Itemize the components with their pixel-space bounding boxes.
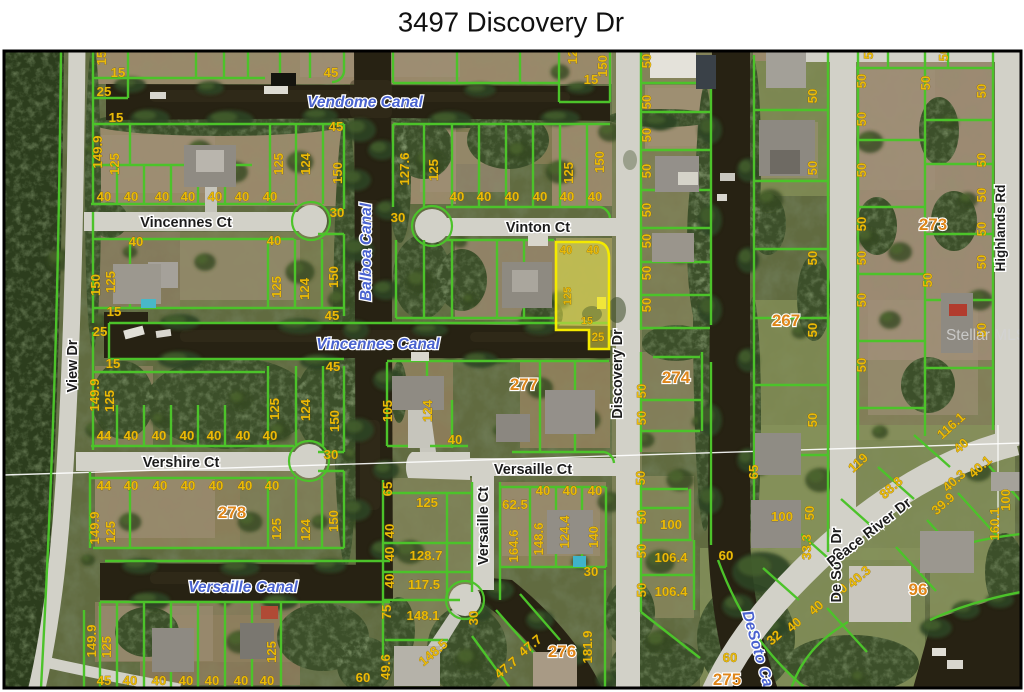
svg-text:125: 125 <box>103 521 118 543</box>
svg-text:Versaille Ct: Versaille Ct <box>476 487 492 565</box>
svg-text:164.6: 164.6 <box>506 529 521 562</box>
svg-text:100: 100 <box>998 489 1013 511</box>
svg-text:181.9: 181.9 <box>580 630 595 663</box>
svg-text:124: 124 <box>298 398 313 421</box>
svg-text:15: 15 <box>106 356 121 371</box>
svg-text:40: 40 <box>267 233 282 248</box>
svg-text:40: 40 <box>536 483 551 498</box>
svg-text:273: 273 <box>919 215 947 234</box>
svg-text:45: 45 <box>325 308 340 323</box>
svg-text:150: 150 <box>330 162 345 184</box>
svg-text:40: 40 <box>448 432 463 447</box>
svg-text:150: 150 <box>326 510 341 532</box>
svg-text:25: 25 <box>97 84 112 99</box>
svg-text:40: 40 <box>123 673 138 688</box>
svg-text:40: 40 <box>208 189 223 204</box>
svg-text:Versaille Ct: Versaille Ct <box>494 462 572 478</box>
svg-text:40: 40 <box>234 673 249 688</box>
svg-text:125: 125 <box>269 276 284 298</box>
svg-text:40: 40 <box>181 189 196 204</box>
svg-text:50: 50 <box>634 510 649 525</box>
svg-text:15: 15 <box>584 72 599 87</box>
svg-text:50: 50 <box>634 411 649 426</box>
svg-text:40: 40 <box>124 478 139 493</box>
svg-text:50: 50 <box>854 163 869 178</box>
svg-text:40: 40 <box>205 673 220 688</box>
svg-text:40: 40 <box>382 524 397 539</box>
svg-text:40: 40 <box>155 189 170 204</box>
svg-text:124: 124 <box>298 518 313 541</box>
svg-text:40: 40 <box>152 673 167 688</box>
svg-text:50: 50 <box>854 251 869 266</box>
svg-text:267: 267 <box>772 311 800 330</box>
svg-text:125: 125 <box>271 153 286 175</box>
svg-text:49.6: 49.6 <box>378 654 393 680</box>
svg-text:Versaille Canal: Versaille Canal <box>188 579 298 596</box>
svg-text:125: 125 <box>103 271 118 293</box>
svg-text:148.6: 148.6 <box>531 522 546 555</box>
svg-text:125: 125 <box>99 636 114 658</box>
svg-text:Balboa Canal: Balboa Canal <box>358 202 375 301</box>
svg-text:50: 50 <box>805 161 820 176</box>
svg-text:149.9: 149.9 <box>84 624 99 657</box>
svg-text:275: 275 <box>713 670 741 689</box>
svg-text:50: 50 <box>805 89 820 104</box>
svg-text:50: 50 <box>805 413 820 428</box>
svg-text:60: 60 <box>723 650 738 665</box>
svg-text:50: 50 <box>805 323 820 338</box>
svg-text:125: 125 <box>561 162 576 184</box>
svg-text:40: 40 <box>563 483 578 498</box>
svg-text:40: 40 <box>181 478 196 493</box>
svg-text:Vendome Canal: Vendome Canal <box>307 94 423 111</box>
svg-text:50: 50 <box>854 74 869 89</box>
svg-text:50: 50 <box>854 217 869 232</box>
svg-text:106.4: 106.4 <box>654 584 688 599</box>
svg-text:30: 30 <box>584 564 599 579</box>
svg-text:50: 50 <box>634 583 649 598</box>
svg-text:125: 125 <box>102 390 117 412</box>
svg-text:40: 40 <box>207 428 222 443</box>
svg-text:105: 105 <box>380 400 395 422</box>
svg-text:150: 150 <box>326 266 341 288</box>
svg-text:50: 50 <box>854 358 869 373</box>
svg-text:50: 50 <box>634 384 649 399</box>
svg-text:30: 30 <box>324 447 339 462</box>
svg-text:50: 50 <box>639 95 654 110</box>
svg-text:40: 40 <box>505 189 520 204</box>
svg-text:150: 150 <box>327 410 342 432</box>
svg-text:3497 Discovery Dr: 3497 Discovery Dr <box>398 7 624 38</box>
svg-text:125: 125 <box>426 159 441 181</box>
svg-text:96: 96 <box>909 580 928 599</box>
svg-text:50: 50 <box>974 222 989 237</box>
svg-text:30: 30 <box>466 611 481 626</box>
svg-text:50: 50 <box>639 54 654 69</box>
svg-text:140: 140 <box>586 526 601 548</box>
svg-text:25: 25 <box>592 332 605 344</box>
svg-text:40: 40 <box>533 189 548 204</box>
svg-text:50: 50 <box>974 188 989 203</box>
svg-text:40: 40 <box>588 483 603 498</box>
svg-text:150: 150 <box>88 274 103 296</box>
svg-text:40: 40 <box>260 673 275 688</box>
svg-text:40: 40 <box>238 478 253 493</box>
svg-text:106.4: 106.4 <box>654 550 688 565</box>
svg-text:50: 50 <box>639 128 654 143</box>
svg-text:50: 50 <box>805 251 820 266</box>
svg-text:50: 50 <box>918 76 933 91</box>
svg-text:15: 15 <box>94 51 109 66</box>
svg-text:150: 150 <box>592 151 607 173</box>
svg-text:Highlands Rd: Highlands Rd <box>993 185 1008 272</box>
svg-text:15: 15 <box>581 315 593 327</box>
svg-text:50: 50 <box>974 84 989 99</box>
svg-text:117.5: 117.5 <box>408 577 440 592</box>
svg-text:15: 15 <box>109 110 124 125</box>
svg-text:50: 50 <box>639 234 654 249</box>
svg-text:15: 15 <box>107 304 122 319</box>
svg-text:40: 40 <box>587 245 600 257</box>
svg-text:40: 40 <box>382 547 397 562</box>
svg-text:40: 40 <box>129 234 144 249</box>
svg-text:45: 45 <box>329 119 344 134</box>
svg-text:40: 40 <box>235 189 250 204</box>
svg-text:40: 40 <box>477 189 492 204</box>
svg-text:124: 124 <box>298 152 313 175</box>
svg-text:45: 45 <box>324 65 339 80</box>
svg-text:100: 100 <box>771 509 793 524</box>
svg-text:278: 278 <box>218 503 246 522</box>
svg-text:45: 45 <box>97 673 112 688</box>
svg-text:148.1: 148.1 <box>406 608 439 623</box>
svg-text:40: 40 <box>153 478 168 493</box>
svg-text:274: 274 <box>662 368 691 387</box>
svg-text:15: 15 <box>111 65 126 80</box>
svg-text:44: 44 <box>97 478 112 493</box>
svg-text:125: 125 <box>267 398 282 420</box>
svg-text:40: 40 <box>560 245 573 257</box>
svg-text:Stellar MLS: Stellar MLS <box>946 327 1024 344</box>
svg-text:100: 100 <box>660 517 682 532</box>
svg-text:50: 50 <box>639 203 654 218</box>
svg-text:30: 30 <box>330 205 345 220</box>
svg-text:75: 75 <box>379 605 394 620</box>
svg-text:50: 50 <box>974 153 989 168</box>
svg-text:40: 40 <box>263 189 278 204</box>
svg-text:40: 40 <box>588 189 603 204</box>
svg-text:125: 125 <box>269 518 284 540</box>
svg-text:65: 65 <box>746 465 761 480</box>
svg-text:128.7: 128.7 <box>409 548 442 563</box>
svg-text:124: 124 <box>297 277 312 300</box>
svg-text:40: 40 <box>180 428 195 443</box>
svg-text:50: 50 <box>920 273 935 288</box>
svg-text:40: 40 <box>97 189 112 204</box>
svg-text:40: 40 <box>265 478 280 493</box>
svg-text:160.1: 160.1 <box>987 507 1002 540</box>
svg-text:50: 50 <box>634 544 649 559</box>
svg-text:40: 40 <box>179 673 194 688</box>
svg-text:40: 40 <box>124 189 139 204</box>
svg-text:65: 65 <box>380 482 395 497</box>
svg-text:Vershire Ct: Vershire Ct <box>143 455 220 471</box>
svg-text:40: 40 <box>209 478 224 493</box>
svg-text:40: 40 <box>382 574 397 589</box>
svg-text:124: 124 <box>420 399 435 422</box>
svg-text:44: 44 <box>97 428 112 443</box>
svg-text:60: 60 <box>356 670 371 685</box>
svg-text:40: 40 <box>152 428 167 443</box>
svg-text:40: 40 <box>450 189 465 204</box>
svg-text:50: 50 <box>633 471 648 486</box>
svg-text:276: 276 <box>548 642 576 661</box>
svg-text:125: 125 <box>416 495 438 510</box>
svg-text:60: 60 <box>719 548 734 563</box>
svg-text:30: 30 <box>391 210 406 225</box>
svg-text:50: 50 <box>639 298 654 313</box>
svg-text:Discovery Dr: Discovery Dr <box>610 329 626 419</box>
svg-text:40: 40 <box>236 428 251 443</box>
svg-text:50: 50 <box>639 266 654 281</box>
svg-text:50: 50 <box>974 255 989 270</box>
svg-text:124.4: 124.4 <box>557 515 572 549</box>
svg-text:25: 25 <box>93 324 108 339</box>
svg-text:Vincennes Canal: Vincennes Canal <box>316 336 440 353</box>
svg-text:50: 50 <box>639 164 654 179</box>
svg-text:33.3: 33.3 <box>799 534 814 560</box>
svg-text:149.9: 149.9 <box>87 378 102 411</box>
svg-text:125: 125 <box>264 641 279 663</box>
svg-text:127.6: 127.6 <box>397 152 412 185</box>
svg-text:50: 50 <box>802 506 817 521</box>
svg-text:Vinton Ct: Vinton Ct <box>506 220 570 236</box>
svg-text:277: 277 <box>510 375 538 394</box>
svg-text:125: 125 <box>562 287 574 305</box>
svg-text:149.9: 149.9 <box>90 135 105 168</box>
svg-text:50: 50 <box>854 112 869 127</box>
svg-text:62.5: 62.5 <box>502 497 528 512</box>
svg-text:149.9: 149.9 <box>87 511 102 544</box>
svg-text:45: 45 <box>326 359 341 374</box>
svg-text:50: 50 <box>854 293 869 308</box>
svg-text:40: 40 <box>124 428 139 443</box>
svg-text:40: 40 <box>560 189 575 204</box>
svg-text:40: 40 <box>263 428 278 443</box>
svg-text:View Dr: View Dr <box>65 339 81 392</box>
svg-text:Vincennes Ct: Vincennes Ct <box>140 215 232 231</box>
svg-text:125: 125 <box>107 153 122 175</box>
